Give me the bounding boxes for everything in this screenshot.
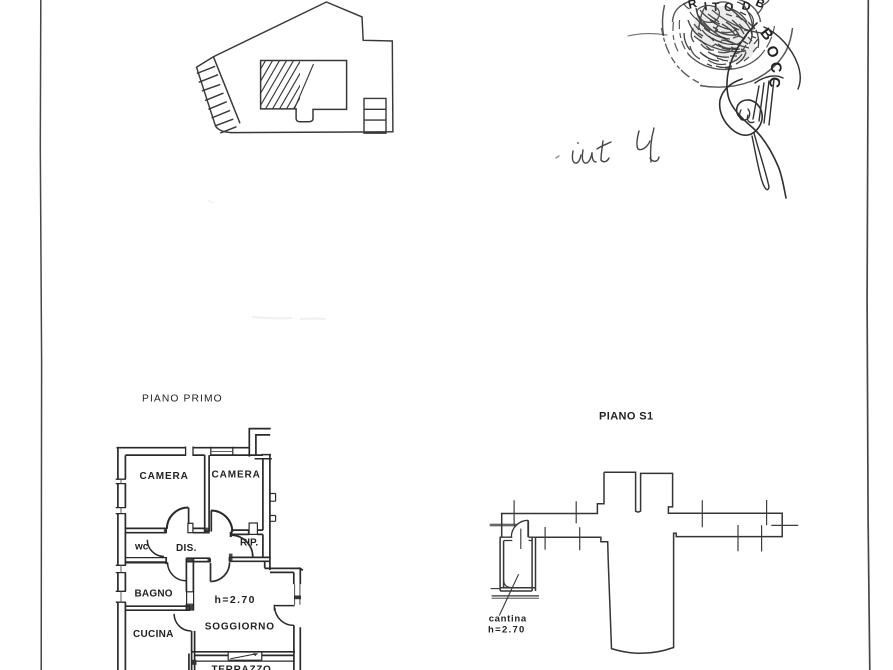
svg-text:CAMERA: CAMERA: [212, 470, 261, 481]
svg-text:TERRAZZO: TERRAZZO: [212, 665, 272, 670]
svg-text:C: C: [767, 61, 785, 74]
svg-text:PIANO PRIMO: PIANO PRIMO: [142, 394, 223, 405]
svg-text:DIS.: DIS.: [176, 543, 197, 554]
svg-text:CUCINA: CUCINA: [133, 629, 174, 640]
svg-text:h=2.70: h=2.70: [215, 594, 256, 606]
svg-text:cantina: cantina: [489, 614, 527, 625]
svg-text:O: O: [762, 43, 782, 60]
svg-text:CAMERA: CAMERA: [140, 471, 189, 482]
svg-text:SOGGIORNO: SOGGIORNO: [205, 622, 275, 633]
svg-text:h=2.70: h=2.70: [488, 625, 526, 636]
svg-text:D: D: [740, 0, 752, 14]
svg-text:PIANO S1: PIANO S1: [599, 411, 654, 423]
svg-text:wc: wc: [134, 542, 149, 553]
svg-text:BAGNO: BAGNO: [135, 589, 173, 600]
